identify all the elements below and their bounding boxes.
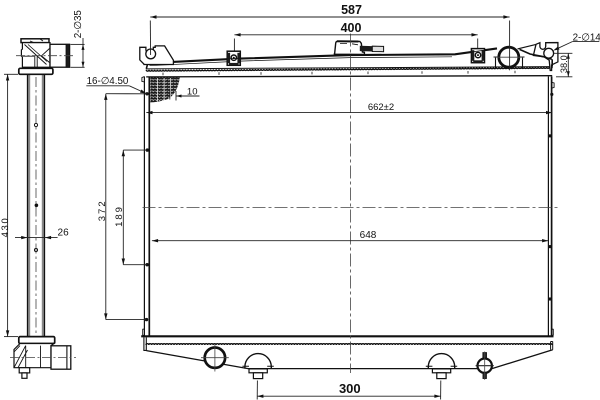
svg-text:587: 587 [341,3,362,17]
svg-text:10: 10 [187,86,198,97]
svg-text:662±2: 662±2 [368,102,394,113]
svg-text:372: 372 [97,199,108,221]
svg-text:400: 400 [341,21,362,35]
svg-text:430: 430 [0,217,11,238]
svg-text:16-∅4.50: 16-∅4.50 [87,76,129,87]
svg-text:2-∅35: 2-∅35 [73,10,84,39]
svg-text:26: 26 [58,227,70,238]
svg-text:648: 648 [360,230,377,241]
svg-text:300: 300 [339,381,361,396]
svg-text:189: 189 [114,205,125,227]
svg-text:38.0: 38.0 [559,55,569,73]
